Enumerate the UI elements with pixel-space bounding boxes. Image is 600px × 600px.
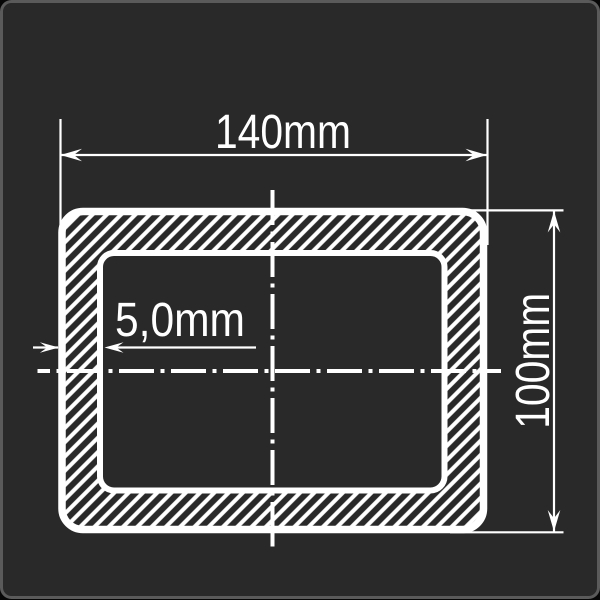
svg-text:140mm: 140mm bbox=[215, 106, 351, 159]
svg-text:100mm: 100mm bbox=[507, 293, 560, 429]
svg-text:5,0mm: 5,0mm bbox=[115, 294, 245, 347]
